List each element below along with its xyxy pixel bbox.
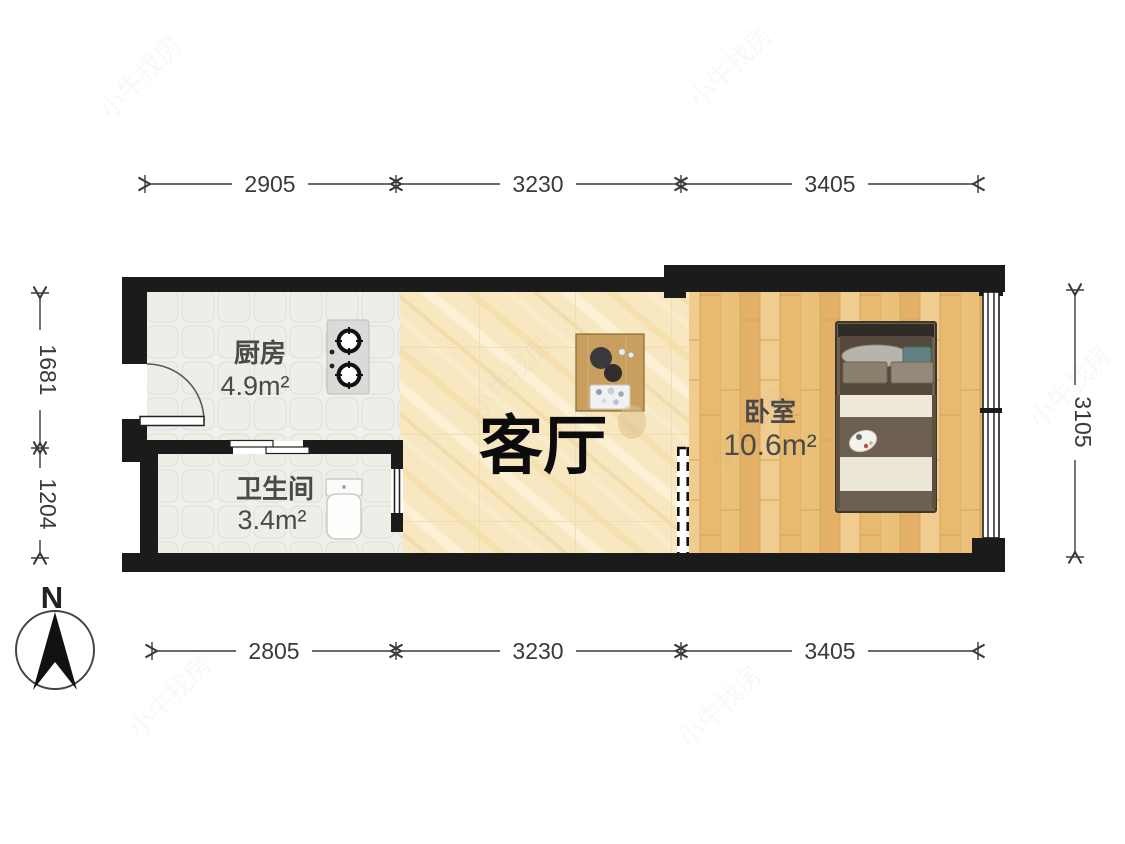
dim-bottom-3: 3405 [804,638,855,664]
wall-top-left [122,277,683,292]
sliding-door-icon [230,441,309,454]
dashed-partition [677,447,689,553]
wall-top-right [664,265,1005,292]
dim-top-2: 3230 [512,171,563,197]
chair-icon [618,405,646,439]
dim-bottom-2: 3230 [512,638,563,664]
kitchen-area: 4.9m² [220,371,289,401]
living-room-label: 客厅 [479,410,607,482]
dim-top-1: 2905 [244,171,295,197]
toilet-icon [326,479,362,539]
bathroom-label: 卫生间 [236,474,314,504]
bathroom-area: 3.4m² [237,505,306,535]
wall-kitchen-bath-right [303,440,403,454]
compass: N [16,580,94,690]
wall-left-upper [122,277,147,364]
dim-top-3: 3405 [804,171,855,197]
watermark-text: 小牛找房 [93,29,188,124]
wall-bathroom-right-lower [391,513,403,532]
dimension-values-left: 1681 1204 [35,344,61,529]
wall-bathroom-right-upper [391,440,403,469]
bathroom-door-icon [391,469,403,513]
north-arrow-icon [33,612,77,690]
wall-bottom [122,553,1005,572]
kitchen-label: 厨房 [234,338,286,368]
watermark-text: 小牛找房 [673,659,768,754]
floor-plan-page: 厨房 4.9m² 卫生间 3.4m² 客厅 卧室 10.6m² 2905 323… [0,0,1125,844]
dim-left-1: 1681 [35,344,61,395]
watermark-text: 小牛找房 [123,649,218,744]
bed-icon [836,322,936,512]
dim-bottom-1: 2805 [248,638,299,664]
wall-kitchen-bath-left [147,440,233,454]
dim-left-2: 1204 [35,478,61,529]
wall-step-stub [664,277,686,298]
window-icon [980,292,1002,538]
wall-corner-bottom-right [972,538,1005,572]
watermark-text: 小牛找房 [683,19,778,114]
wall-left-bathroom [140,454,158,555]
desk-icon [576,334,644,411]
stove-icon [327,320,369,394]
north-label: N [41,580,63,615]
floor-plan-canvas: 厨房 4.9m² 卫生间 3.4m² 客厅 卧室 10.6m² 2905 323… [0,0,1125,844]
